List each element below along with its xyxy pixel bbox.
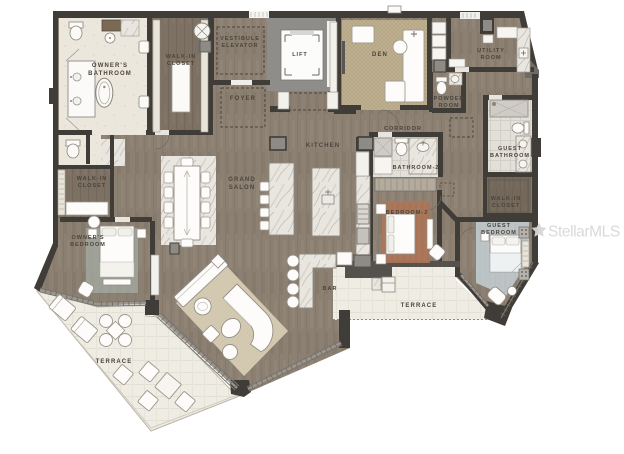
svg-text:BAR: BAR <box>323 286 338 292</box>
svg-text:SALON: SALON <box>229 185 256 191</box>
svg-text:CLOSET: CLOSET <box>78 183 106 189</box>
svg-text:ROOM: ROOM <box>438 103 459 109</box>
svg-text:BATHROOM-2: BATHROOM-2 <box>393 165 440 171</box>
svg-text:KITCHEN: KITCHEN <box>306 143 340 149</box>
svg-text:BATHROOM: BATHROOM <box>490 153 530 159</box>
svg-text:StellarMLS: StellarMLS <box>548 224 620 241</box>
svg-text:LIFT: LIFT <box>292 52 308 58</box>
svg-text:BEDROOM-2: BEDROOM-2 <box>386 210 429 216</box>
svg-text:BEDROOM: BEDROOM <box>481 230 517 236</box>
svg-text:DEN: DEN <box>372 52 388 58</box>
svg-text:TERRACE: TERRACE <box>401 303 438 309</box>
svg-text:CLOSET: CLOSET <box>167 61 195 67</box>
svg-text:GUEST: GUEST <box>487 223 511 229</box>
svg-text:OWNER'S: OWNER'S <box>92 63 128 69</box>
svg-text:POWDER: POWDER <box>434 96 465 102</box>
svg-text:GRAND: GRAND <box>228 177 256 183</box>
svg-text:ROOM: ROOM <box>480 55 501 61</box>
svg-text:OWNER'S: OWNER'S <box>71 235 104 241</box>
svg-text:CLOSET: CLOSET <box>492 203 520 209</box>
svg-text:GUEST: GUEST <box>498 146 522 152</box>
svg-text:BEDROOM: BEDROOM <box>70 242 106 248</box>
svg-text:FOYER: FOYER <box>230 96 256 102</box>
svg-text:CORRIDOR: CORRIDOR <box>384 126 422 132</box>
svg-text:BATHROOM: BATHROOM <box>88 71 132 77</box>
svg-text:TERRACE: TERRACE <box>96 359 133 365</box>
svg-text:UTILITY: UTILITY <box>477 48 505 54</box>
svg-text:ELEVATOR: ELEVATOR <box>221 43 258 49</box>
svg-text:VESTIBULE: VESTIBULE <box>220 36 260 42</box>
svg-text:WALK-IN: WALK-IN <box>491 196 522 202</box>
svg-text:WALK-IN: WALK-IN <box>77 176 108 182</box>
svg-text:WALK-IN: WALK-IN <box>166 54 197 60</box>
